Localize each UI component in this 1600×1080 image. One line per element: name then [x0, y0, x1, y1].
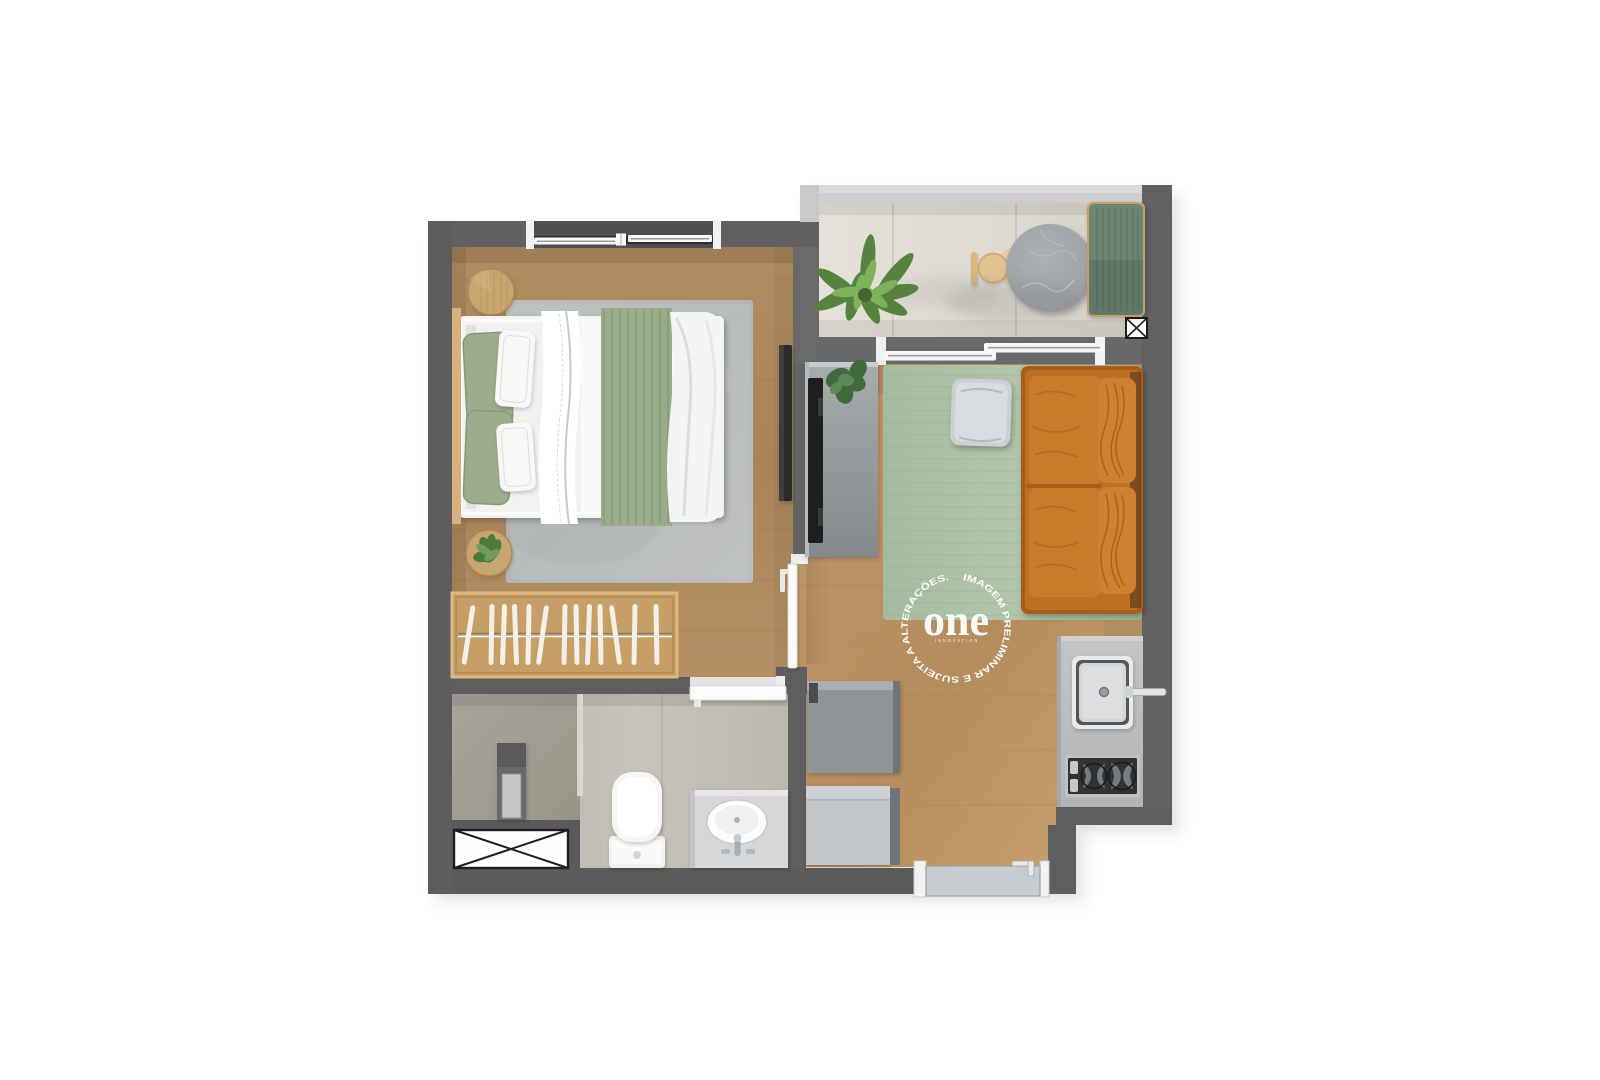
svg-text:INNOVATION: INNOVATION [935, 638, 979, 643]
